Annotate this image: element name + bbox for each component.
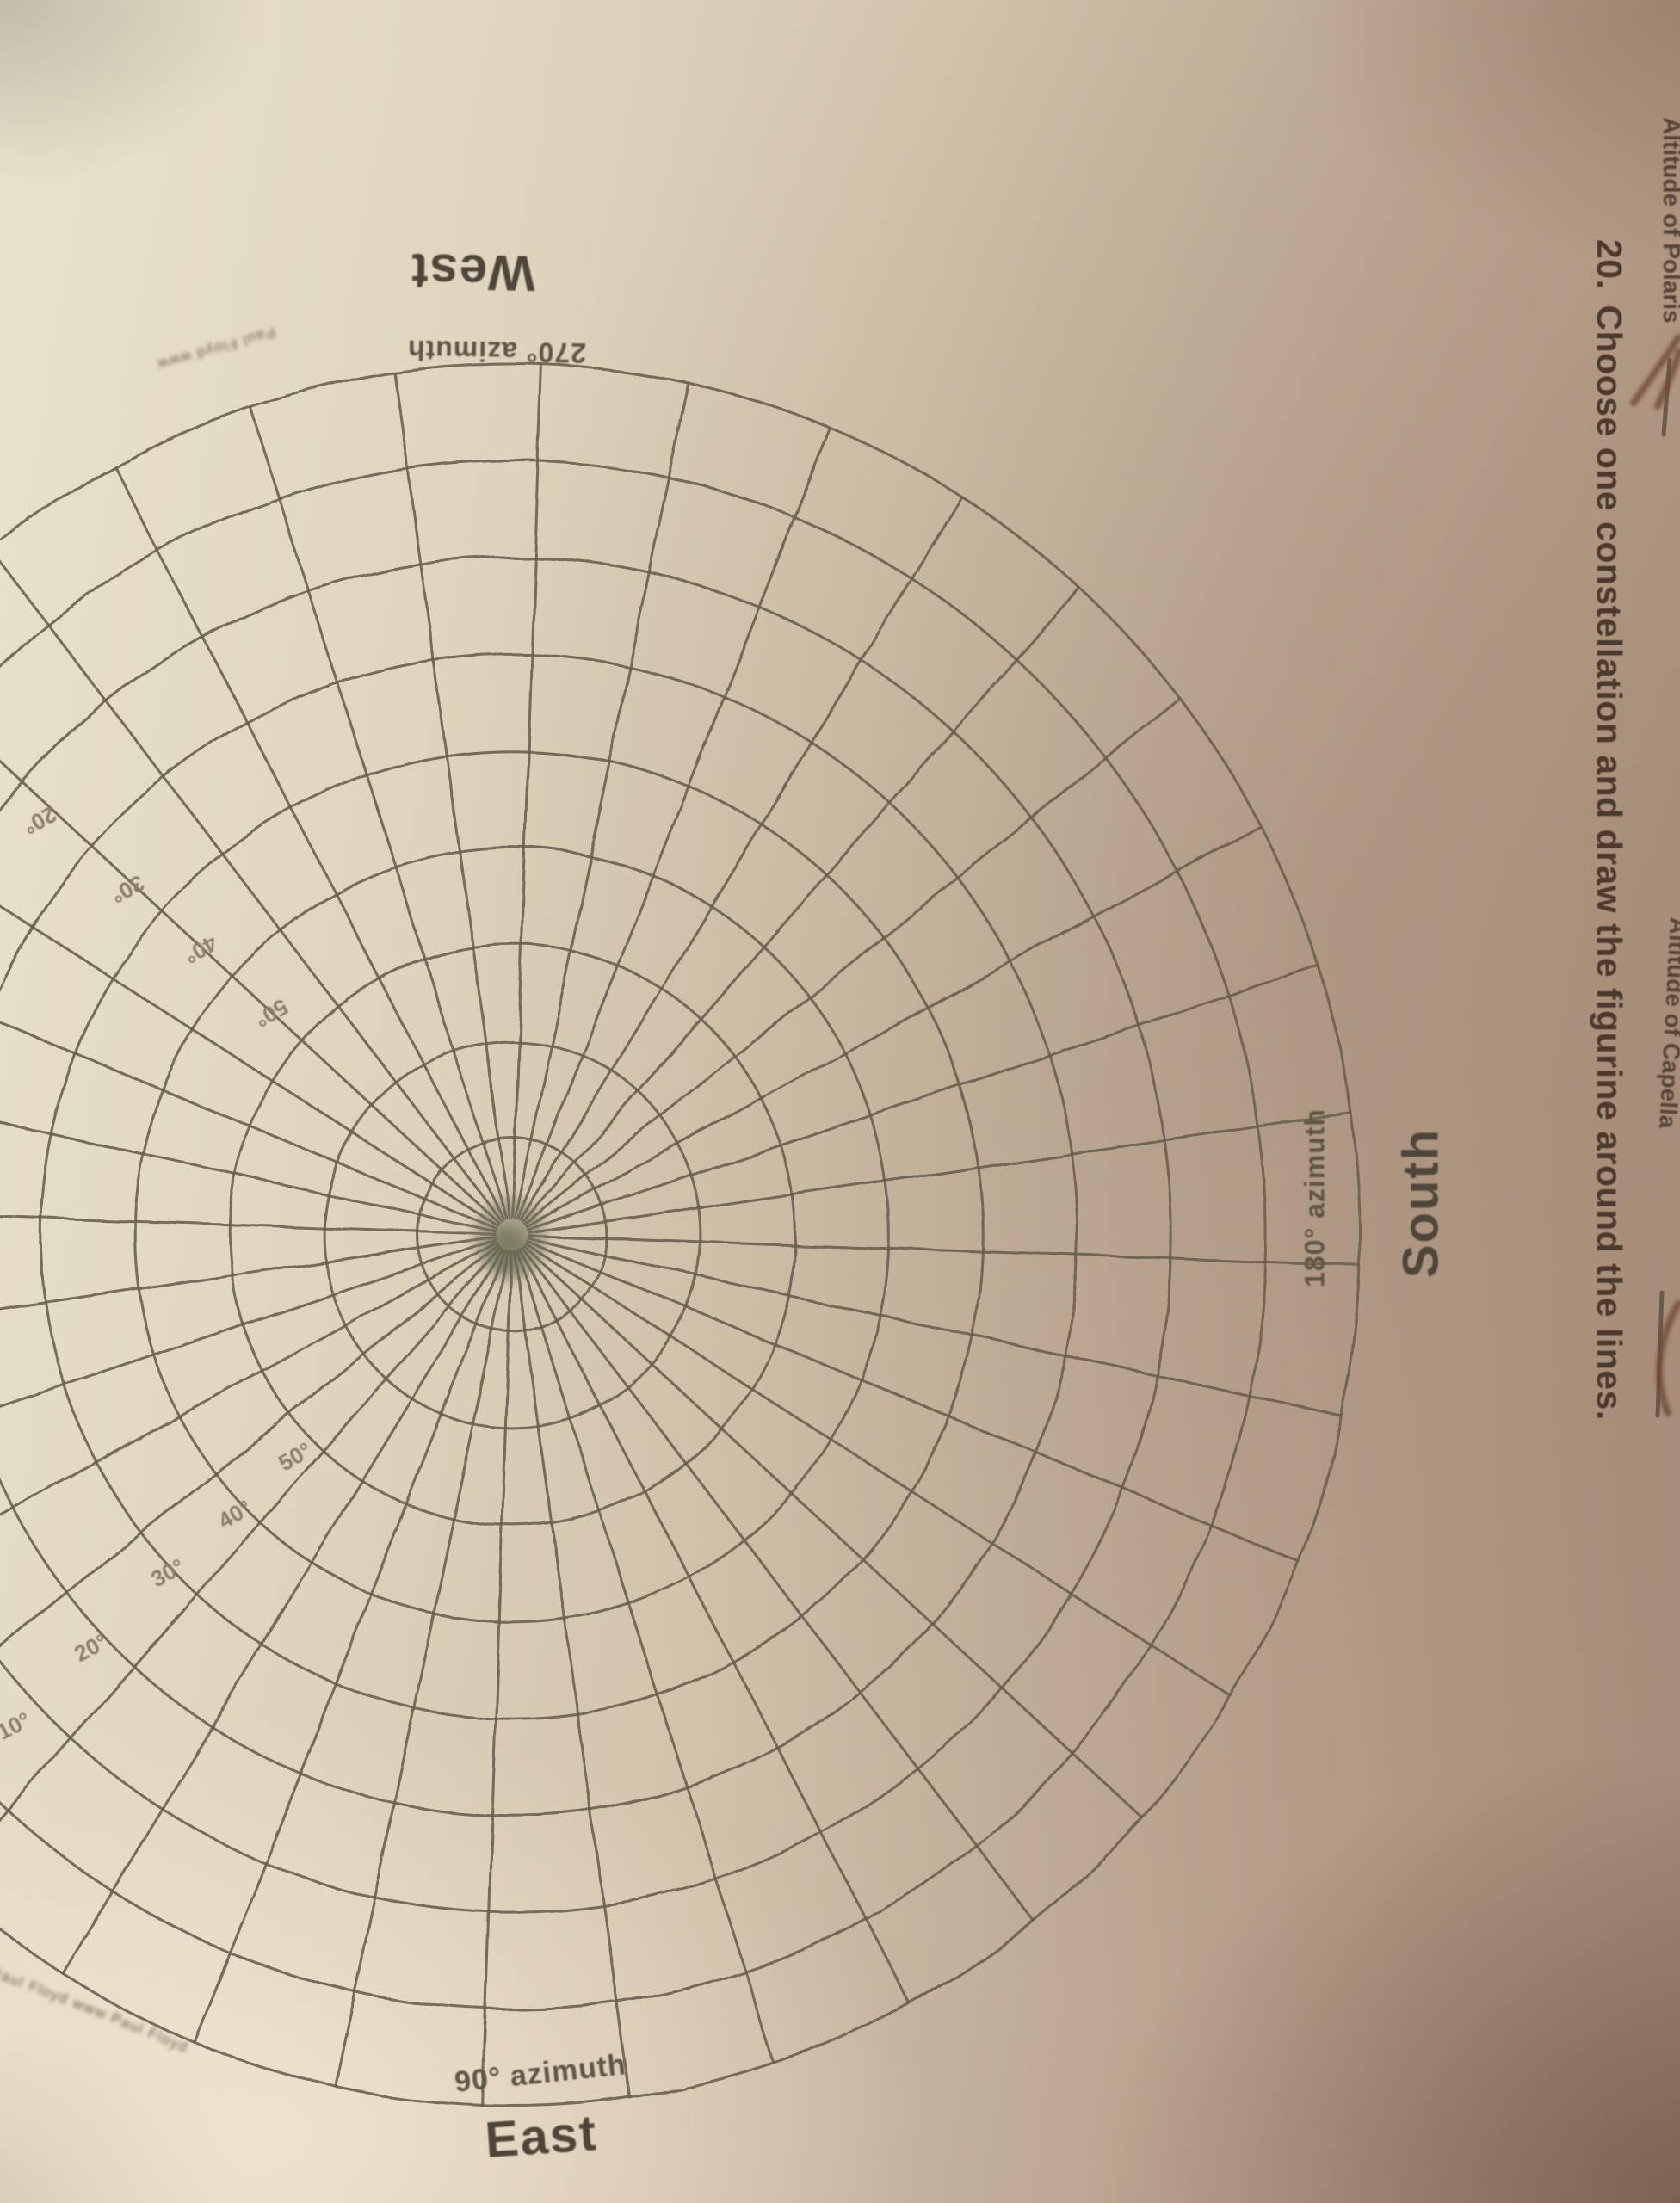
polar-grid-lines <box>0 364 1360 2106</box>
fine-print-top: Paul Floyd www <box>155 324 278 373</box>
svg-text:Paul Floyd www: Paul Floyd www <box>155 324 278 373</box>
azimuth-radial <box>516 383 689 1218</box>
azimuth-radial <box>0 1243 497 1645</box>
center-handwritten-smudge <box>474 1198 547 1280</box>
compass-label-west: West <box>410 242 536 302</box>
question-number: 20. <box>1590 239 1629 290</box>
azimuth-radial <box>336 1252 509 2087</box>
azimuth-radial <box>515 1252 630 2097</box>
fine-print-bottom: Paul Floyd www Paul Floyd <box>0 1964 191 2056</box>
azimuth-radial <box>529 1114 1352 1232</box>
azimuth-radial <box>529 1236 1360 1266</box>
azimuth-radial <box>114 466 504 1220</box>
azimuth-radial <box>525 1247 1142 1818</box>
azimuth-radial <box>521 497 961 1220</box>
azimuth-radial <box>0 652 499 1224</box>
question-text: 20.Choose one constellation and draw the… <box>1589 239 1629 1421</box>
azimuth-radial <box>527 826 1260 1227</box>
azimuth-radial <box>0 549 502 1222</box>
svg-text:Paul Floyd www Paul Floyd: Paul Floyd www Paul Floyd <box>0 1964 191 2056</box>
azimuth-radial <box>528 1238 1341 1416</box>
worksheet-photo-page: Paul Floyd www Paul Floyd www Paul Floyd… <box>0 0 1680 2203</box>
azimuth-radial <box>483 1252 512 2105</box>
azimuth-radial <box>0 1054 496 1231</box>
compass-label-east: East <box>484 2104 600 2169</box>
azimuth-radial <box>523 588 1079 1222</box>
azimuth-radial <box>518 428 830 1219</box>
question-body: Choose one constellation and draw the fi… <box>1590 305 1629 1421</box>
azimuth-label-180: 180° azimuth <box>1300 1108 1331 1287</box>
altitude-azimuth-grid: Paul Floyd www Paul Floyd www Paul Floyd <box>0 0 1680 2203</box>
handwritten-answer-strokes <box>1634 337 1679 1413</box>
azimuth-radial <box>528 1242 1298 1562</box>
answer-blank-underlines <box>1658 360 1670 1416</box>
azimuth-radial <box>526 699 1181 1225</box>
azimuth-radial <box>520 1250 910 2004</box>
altitude-ring <box>0 558 1171 1912</box>
azimuth-radial <box>63 1250 503 1973</box>
altitude-ring <box>0 364 1360 2106</box>
azimuth-radial <box>513 365 542 1218</box>
answer-label-polaris: Altitude of Polaris <box>1658 117 1680 324</box>
azimuth-radial <box>394 373 510 1218</box>
altitude-ring <box>0 460 1266 2009</box>
azimuth-radial <box>0 909 497 1229</box>
azimuth-radial <box>522 1249 1034 1922</box>
compass-label-south: South <box>1393 1128 1450 1278</box>
azimuth-radial <box>195 1251 506 2043</box>
azimuth-radial <box>0 774 497 1226</box>
azimuth-radial <box>527 1244 1232 1697</box>
azimuth-label-270: 270° azimuth <box>407 334 587 369</box>
